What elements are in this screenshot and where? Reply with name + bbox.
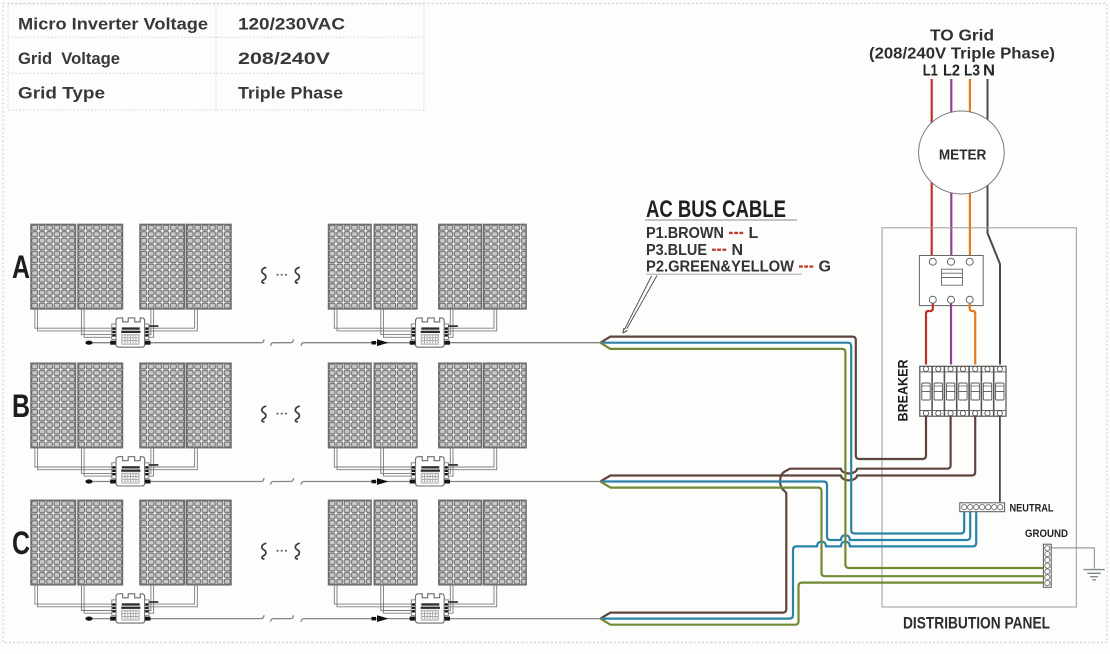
svg-text:(208/240V Triple Phase): (208/240V Triple Phase)	[869, 46, 1055, 63]
svg-text:C: C	[12, 525, 30, 561]
svg-text:G: G	[819, 259, 831, 276]
svg-text:L3: L3	[964, 63, 980, 80]
svg-text:METER: METER	[939, 147, 987, 163]
svg-text:Micro Inverter Voltage: Micro Inverter Voltage	[18, 15, 208, 34]
svg-text:TO Grid: TO Grid	[930, 28, 994, 45]
svg-text:N: N	[983, 63, 995, 80]
svg-text:P1.BROWN: P1.BROWN	[646, 225, 724, 242]
svg-text:GROUND: GROUND	[1025, 528, 1068, 540]
svg-text:B: B	[12, 388, 30, 424]
svg-text:Grid Voltage: Grid Voltage	[18, 49, 120, 68]
svg-text:BREAKER: BREAKER	[895, 360, 911, 422]
svg-text:L2: L2	[943, 63, 960, 80]
svg-text:NEUTRAL: NEUTRAL	[1010, 503, 1054, 515]
svg-text:208/240V: 208/240V	[238, 49, 331, 68]
svg-text:P3.BLUE: P3.BLUE	[646, 242, 707, 259]
svg-text:L: L	[749, 225, 759, 242]
svg-text:Triple Phase: Triple Phase	[238, 84, 343, 103]
svg-text:L1: L1	[923, 63, 938, 80]
svg-text:A: A	[12, 249, 30, 285]
svg-text:AC BUS CABLE: AC BUS CABLE	[646, 196, 786, 223]
svg-text:P2.GREEN&YELLOW: P2.GREEN&YELLOW	[646, 259, 795, 276]
svg-text:N: N	[732, 242, 744, 259]
svg-text:DISTRIBUTION PANEL: DISTRIBUTION PANEL	[903, 615, 1050, 633]
svg-text:Grid Type: Grid Type	[18, 84, 105, 103]
svg-text:120/230VAC: 120/230VAC	[238, 15, 345, 34]
